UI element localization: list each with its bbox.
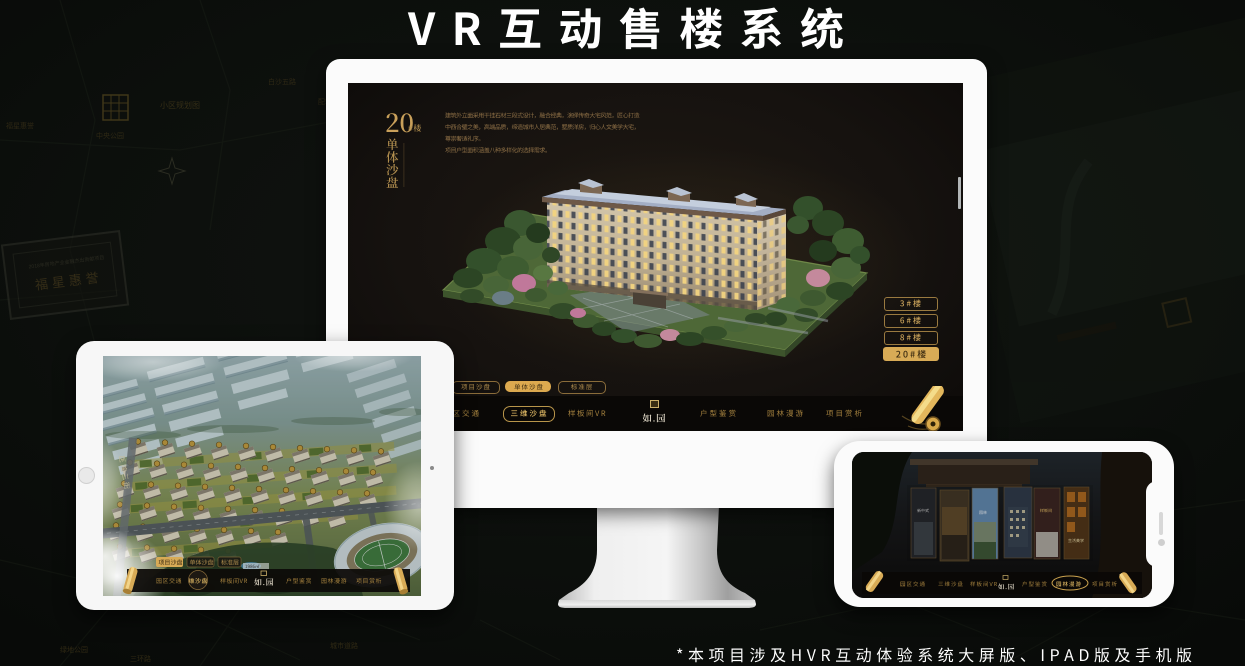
svg-text:白沙五路: 白沙五路 — [268, 77, 296, 86]
svg-text:福星惠誉: 福星惠誉 — [6, 121, 34, 130]
svg-text:小区规划图: 小区规划图 — [160, 100, 200, 110]
svg-text:中央公园: 中央公园 — [96, 131, 124, 140]
svg-text:绿地公园: 绿地公园 — [60, 645, 88, 654]
svg-text:城市道路: 城市道路 — [330, 641, 358, 650]
svg-text:三环路: 三环路 — [130, 654, 151, 663]
